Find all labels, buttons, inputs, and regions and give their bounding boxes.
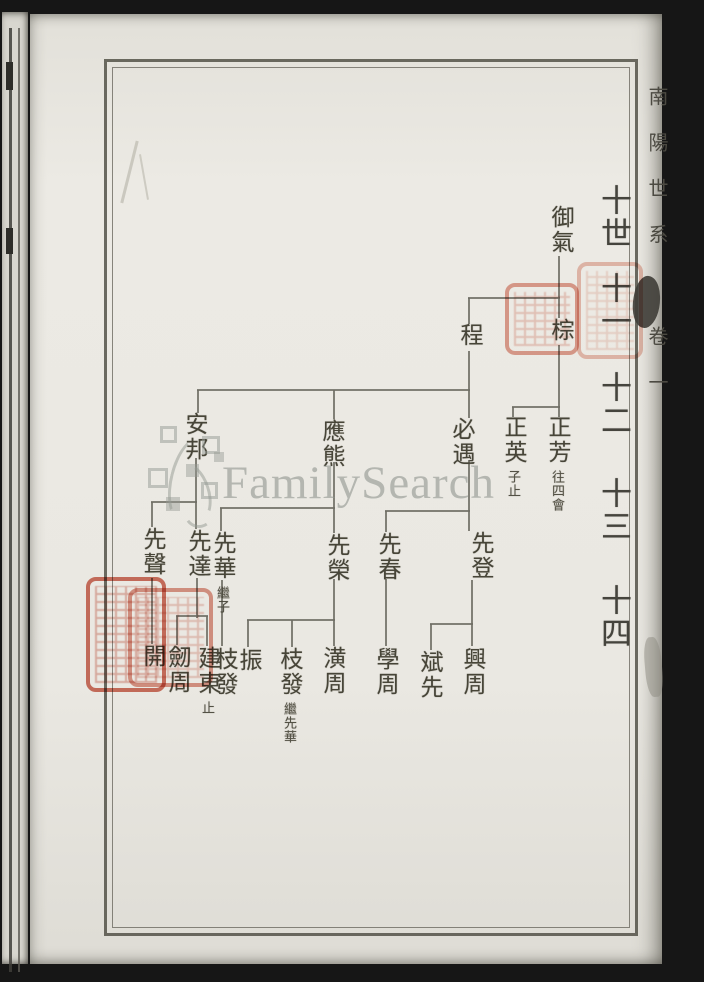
- familysearch-watermark-text: FamilySearch: [222, 456, 495, 510]
- person-node: 先榮: [323, 533, 350, 583]
- generation-label: 十二: [591, 371, 636, 437]
- connector-line: [291, 620, 293, 647]
- connector-line: [468, 351, 470, 418]
- connector-line: [247, 620, 249, 647]
- person-node: 枝發繼先華: [276, 647, 303, 744]
- person-name: 正英: [501, 415, 526, 465]
- person-name: 先聲: [140, 527, 165, 577]
- scanned-genealogy-page: 南陽世系 卷一 FamilySearch 十世十一十二十三十四御氣棕程正芳往四會…: [0, 0, 704, 982]
- person-name: 斌先: [417, 650, 442, 700]
- person-name: 先榮: [324, 533, 349, 583]
- person-node: 斌先: [416, 650, 443, 700]
- seal-stamp: [577, 262, 643, 359]
- person-name: 興周: [460, 647, 485, 697]
- person-name: 先登: [468, 531, 493, 581]
- connector-line: [385, 579, 387, 646]
- generation-label: 十四: [591, 584, 636, 650]
- person-note: 繼先華: [282, 697, 297, 744]
- person-node: 潢周: [319, 646, 346, 696]
- person-node: 御氣: [547, 205, 574, 255]
- volume-label: 卷一: [642, 326, 671, 418]
- person-note: 繼子: [215, 581, 230, 614]
- connector-line: [333, 390, 335, 419]
- person-note: 子止: [506, 465, 521, 498]
- connector-line: [468, 298, 470, 324]
- person-note: 往四會: [550, 465, 565, 512]
- connector-line: [197, 390, 199, 413]
- person-name: 先華: [210, 531, 235, 581]
- person-note: 止: [200, 696, 215, 715]
- connector-line: [430, 623, 473, 625]
- connector-line: [151, 502, 153, 527]
- watermark-logo-square: [214, 452, 224, 462]
- watermark-logo-square: [166, 497, 180, 511]
- ink-notch: [6, 62, 13, 90]
- person-name: 先春: [375, 532, 400, 582]
- generation-label: 十三: [591, 477, 636, 543]
- person-node: 先登: [467, 531, 494, 581]
- generation-label: 十世: [591, 184, 636, 250]
- person-name: 學周: [373, 647, 398, 697]
- seal-stamp: [128, 588, 213, 687]
- book-title-margin: 南陽世系: [642, 86, 671, 270]
- ink-notch: [6, 228, 13, 254]
- watermark-logo-square: [201, 482, 218, 499]
- person-name: 枝發: [277, 647, 302, 697]
- connector-line: [430, 624, 432, 650]
- person-node: 興周: [459, 647, 486, 697]
- watermark-logo-square: [186, 464, 199, 477]
- connector-line: [512, 406, 560, 408]
- person-node: 正芳往四會: [544, 415, 571, 512]
- connector-line: [385, 511, 387, 532]
- connector-line: [220, 508, 222, 531]
- connector-line: [385, 510, 470, 512]
- person-name: 御氣: [548, 205, 573, 255]
- person-name: 振: [236, 648, 261, 673]
- person-node: 振: [235, 648, 262, 673]
- person-node: 程: [456, 323, 483, 348]
- person-node: 先聲: [139, 527, 166, 577]
- connector-line: [333, 579, 335, 646]
- person-node: 正英子止: [500, 415, 527, 498]
- watermark-logo-square: [148, 468, 168, 488]
- person-name: 先達: [185, 529, 210, 579]
- connector-line: [471, 580, 473, 646]
- person-name: 潢周: [320, 646, 345, 696]
- adjacent-page-border-line: [9, 28, 12, 972]
- person-node: 學周: [372, 647, 399, 697]
- person-name: 正芳: [545, 415, 570, 465]
- seal-stamp: [505, 283, 579, 355]
- person-node: 先春: [374, 532, 401, 582]
- adjacent-page-border-line: [18, 28, 20, 972]
- adjacent-page-edge: [2, 12, 28, 964]
- person-node: 先達: [184, 529, 211, 579]
- person-name: 程: [457, 323, 482, 348]
- person-node: 先華繼子: [209, 531, 236, 614]
- watermark-logo-square: [160, 426, 177, 443]
